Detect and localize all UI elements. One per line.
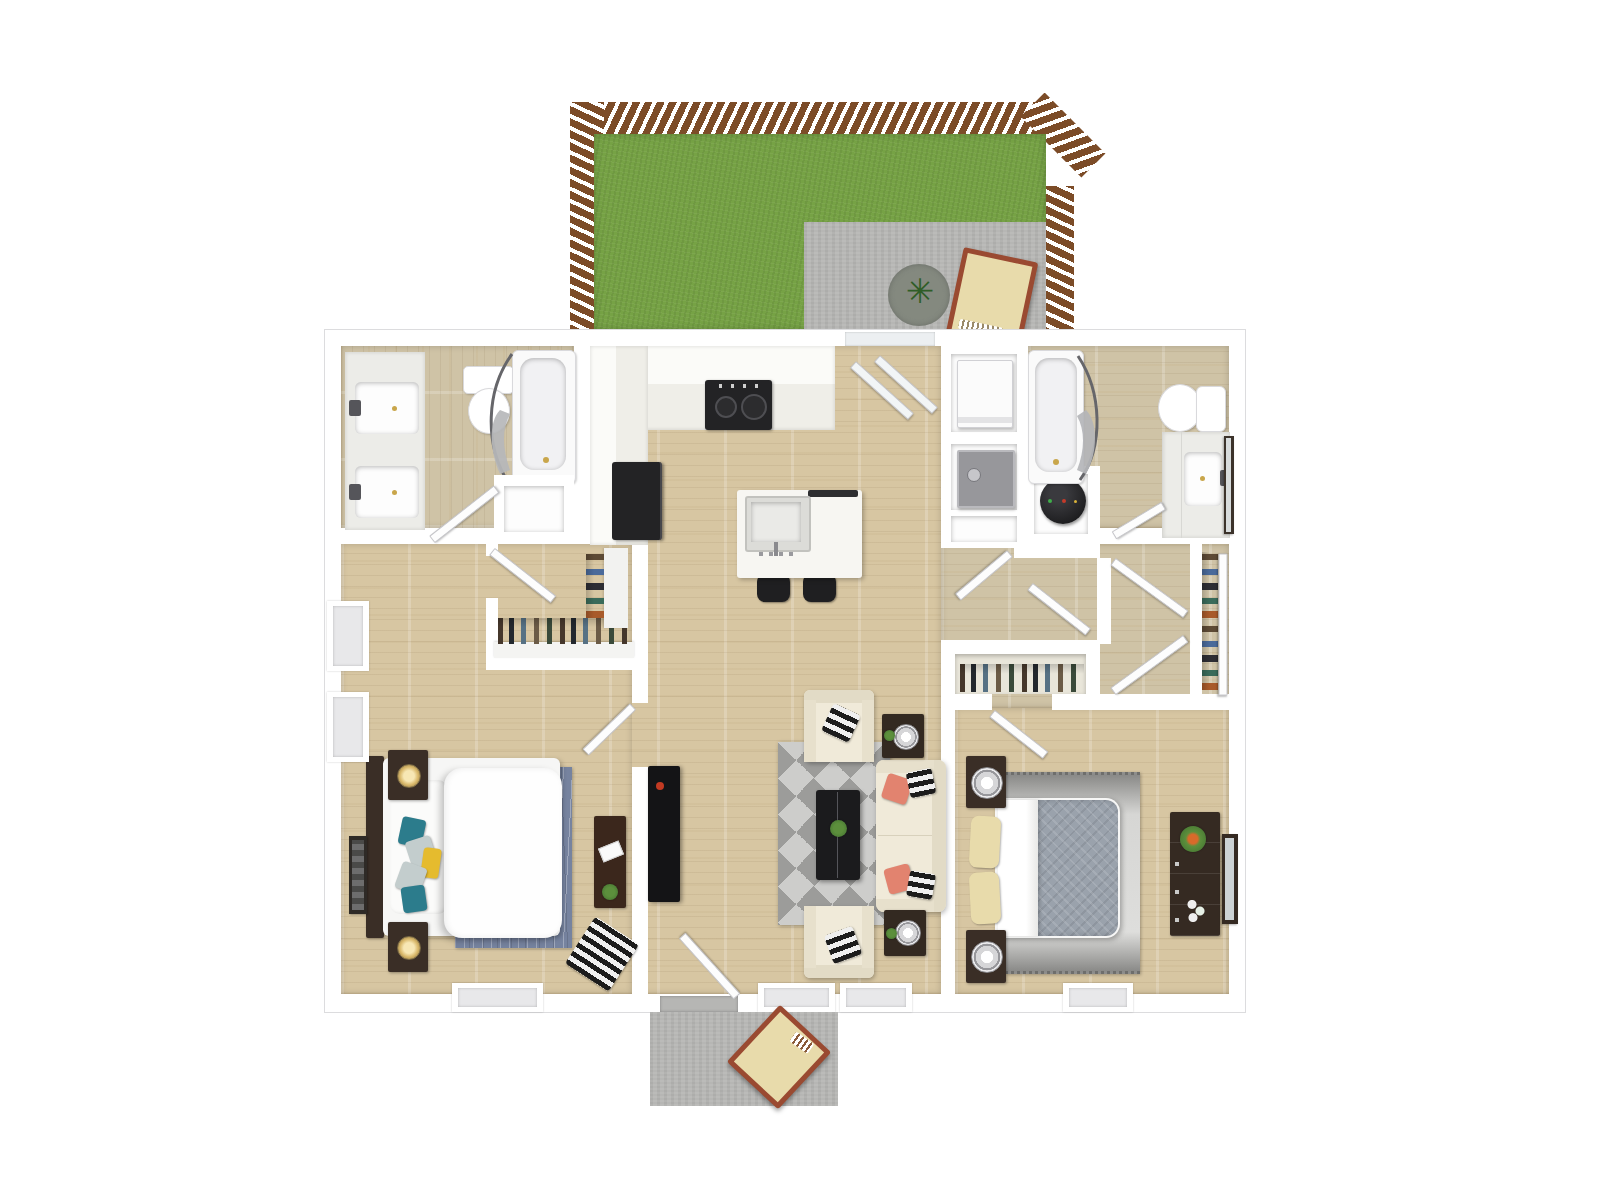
water-heater-led-green-icon (1048, 499, 1052, 503)
bed2-leaning-mirror (1222, 834, 1238, 924)
bed1-desk-plant-icon (602, 884, 618, 900)
porch-chair-pillow-icon (789, 1032, 814, 1054)
media-console (648, 766, 680, 902)
kitchen-refrigerator (612, 462, 662, 540)
bed1-window-left-2-glass-icon (333, 697, 363, 757)
bath2-drain-icon (1200, 476, 1205, 481)
bed2-window-bottom-glass-icon (1069, 988, 1127, 1007)
wall-bed2-top-west (955, 694, 992, 710)
bed2-lamp-bottom-icon (971, 941, 1003, 973)
washer (957, 360, 1013, 428)
bath2-vanity-seam-icon (1181, 432, 1182, 538)
console-decor-red-icon (656, 782, 664, 790)
bath1-shower-curtain-icon (478, 348, 518, 488)
water-heater-led-yellow-icon (1074, 500, 1077, 503)
bed1-window-left-1 (327, 601, 369, 671)
bath1-linen-niche (504, 486, 564, 532)
sliding-door-sill (845, 332, 935, 346)
linen-closet-door (1219, 554, 1228, 696)
bath1-sink-1 (355, 382, 419, 434)
bed2-duvet-gray (1032, 800, 1118, 936)
island-sink-basin (751, 502, 801, 542)
wall-closet1-bottom (486, 656, 648, 670)
dresser-plant-icon (1180, 826, 1206, 852)
end-table-top-lamp-icon (893, 724, 919, 750)
bed2-pillow-2 (969, 871, 1002, 924)
wall-hall-closet-right (1086, 654, 1100, 694)
wall-linen-divider (1190, 544, 1202, 694)
bed1-lamp-bottom-icon (397, 936, 421, 960)
kitchen-stool-2 (803, 574, 836, 602)
potted-plant-icon: ✳ (900, 271, 940, 311)
hall-closet-clothes (960, 664, 1084, 692)
front-door-threshold (660, 996, 738, 1012)
dresser-knobs-icon (1175, 838, 1179, 922)
coffee-table-plant-icon (830, 820, 847, 837)
closet1-side-clothes (586, 554, 604, 618)
wall-hall-divider (1097, 558, 1111, 644)
bath1-tub-faucet-icon (543, 457, 549, 463)
bed2-mirror-glass-icon (1225, 838, 1234, 920)
bath2-mirror (1224, 436, 1234, 534)
bed2-pillow-1 (969, 815, 1002, 868)
armchair-top-arm-left-icon (804, 700, 816, 762)
bed2-window-bottom (1063, 983, 1133, 1012)
bath2-mirror-glass-icon (1226, 438, 1231, 532)
wall-bed1-living-lower (632, 767, 648, 994)
end-table-bottom-lamp-icon (895, 920, 921, 946)
dryer-door-icon (967, 468, 981, 482)
end-table-bottom-plant-icon (886, 928, 897, 939)
bath1-faucet-2-icon (349, 484, 361, 500)
sofa-pillow-stripe-2 (906, 870, 936, 900)
bath1-drain-1-icon (392, 406, 397, 411)
wall-hall-closet-top (941, 640, 1100, 654)
island-sink (745, 496, 811, 552)
living-window-1 (758, 983, 835, 1012)
island-bar-edge (808, 490, 858, 497)
island-controls-icon (759, 552, 795, 556)
bath1-sink-2 (355, 466, 419, 518)
closet1-side-shelf (604, 548, 628, 628)
sofa-cushion-seam-icon (878, 835, 932, 836)
bath2-tub-faucet-icon (1053, 459, 1059, 465)
washer-door-seam-icon (958, 417, 1012, 423)
utility-shelf-niche (951, 516, 1017, 542)
bed1-duvet (444, 768, 562, 938)
bath1-faucet-1-icon (349, 400, 361, 416)
wall-bed2-top-east (1052, 694, 1229, 710)
bed1-wall-art-image-icon (352, 840, 364, 910)
dresser-jars-icon (1186, 900, 1206, 922)
floor-plan-canvas: ✳ (0, 0, 1600, 1200)
bed1-window-left-2 (327, 692, 369, 762)
range-knobs-icon (719, 384, 759, 388)
end-table-top-plant-icon (884, 730, 895, 741)
wall-bath1-bottom-west (341, 528, 429, 544)
bed2-dresser (1170, 812, 1220, 936)
bed1-window-bottom-glass-icon (458, 988, 537, 1007)
porch-chair (727, 1005, 831, 1110)
wall-bed1-living-upper (632, 544, 648, 703)
kitchen-stool-1 (757, 574, 790, 602)
bed1-window-left-1-glass-icon (333, 606, 363, 666)
bed1-lamp-top-icon (397, 764, 421, 788)
bath1-tub (512, 350, 576, 484)
bath1-tub-basin (520, 358, 566, 470)
coffee-table (816, 790, 860, 880)
living-window-2 (840, 983, 912, 1012)
kitchen-range (705, 380, 772, 430)
water-heater-led-red-icon (1062, 499, 1066, 503)
dryer (957, 450, 1015, 508)
bed2-lamp-top-icon (971, 767, 1003, 799)
armchair-bottom-arm-left-icon (804, 906, 816, 968)
closet1-shelf (494, 642, 634, 658)
range-burner-1-icon (715, 396, 737, 418)
bed2-sheet-fold (998, 800, 1038, 936)
bed1-pillow-teal-2 (400, 884, 427, 913)
bed1-window-bottom (452, 983, 543, 1012)
front-porch (650, 1012, 838, 1106)
sofa-pillow-stripe-1 (906, 768, 937, 799)
bath2-tub-basin (1035, 358, 1077, 472)
bed1-wall-art (349, 836, 367, 914)
armchair-top-arm-right-icon (862, 700, 874, 762)
bath1-drain-2-icon (392, 490, 397, 495)
living-window-2-glass-icon (846, 988, 906, 1007)
armchair-bottom-arm-right-icon (862, 906, 874, 968)
bed1-headboard (366, 756, 384, 938)
range-burner-2-icon (741, 394, 767, 420)
kitchen-island (737, 490, 862, 578)
backyard: ✳ (560, 95, 1120, 335)
linen-closet-clothes (1202, 552, 1218, 690)
wall-bath1-kitchen (574, 346, 590, 544)
living-window-1-glass-icon (764, 988, 829, 1007)
wall-hall-doorway-pillar (1014, 540, 1028, 558)
bath2-shower-curtain-icon (1072, 350, 1112, 486)
bath2-toilet-tank (1196, 386, 1226, 432)
